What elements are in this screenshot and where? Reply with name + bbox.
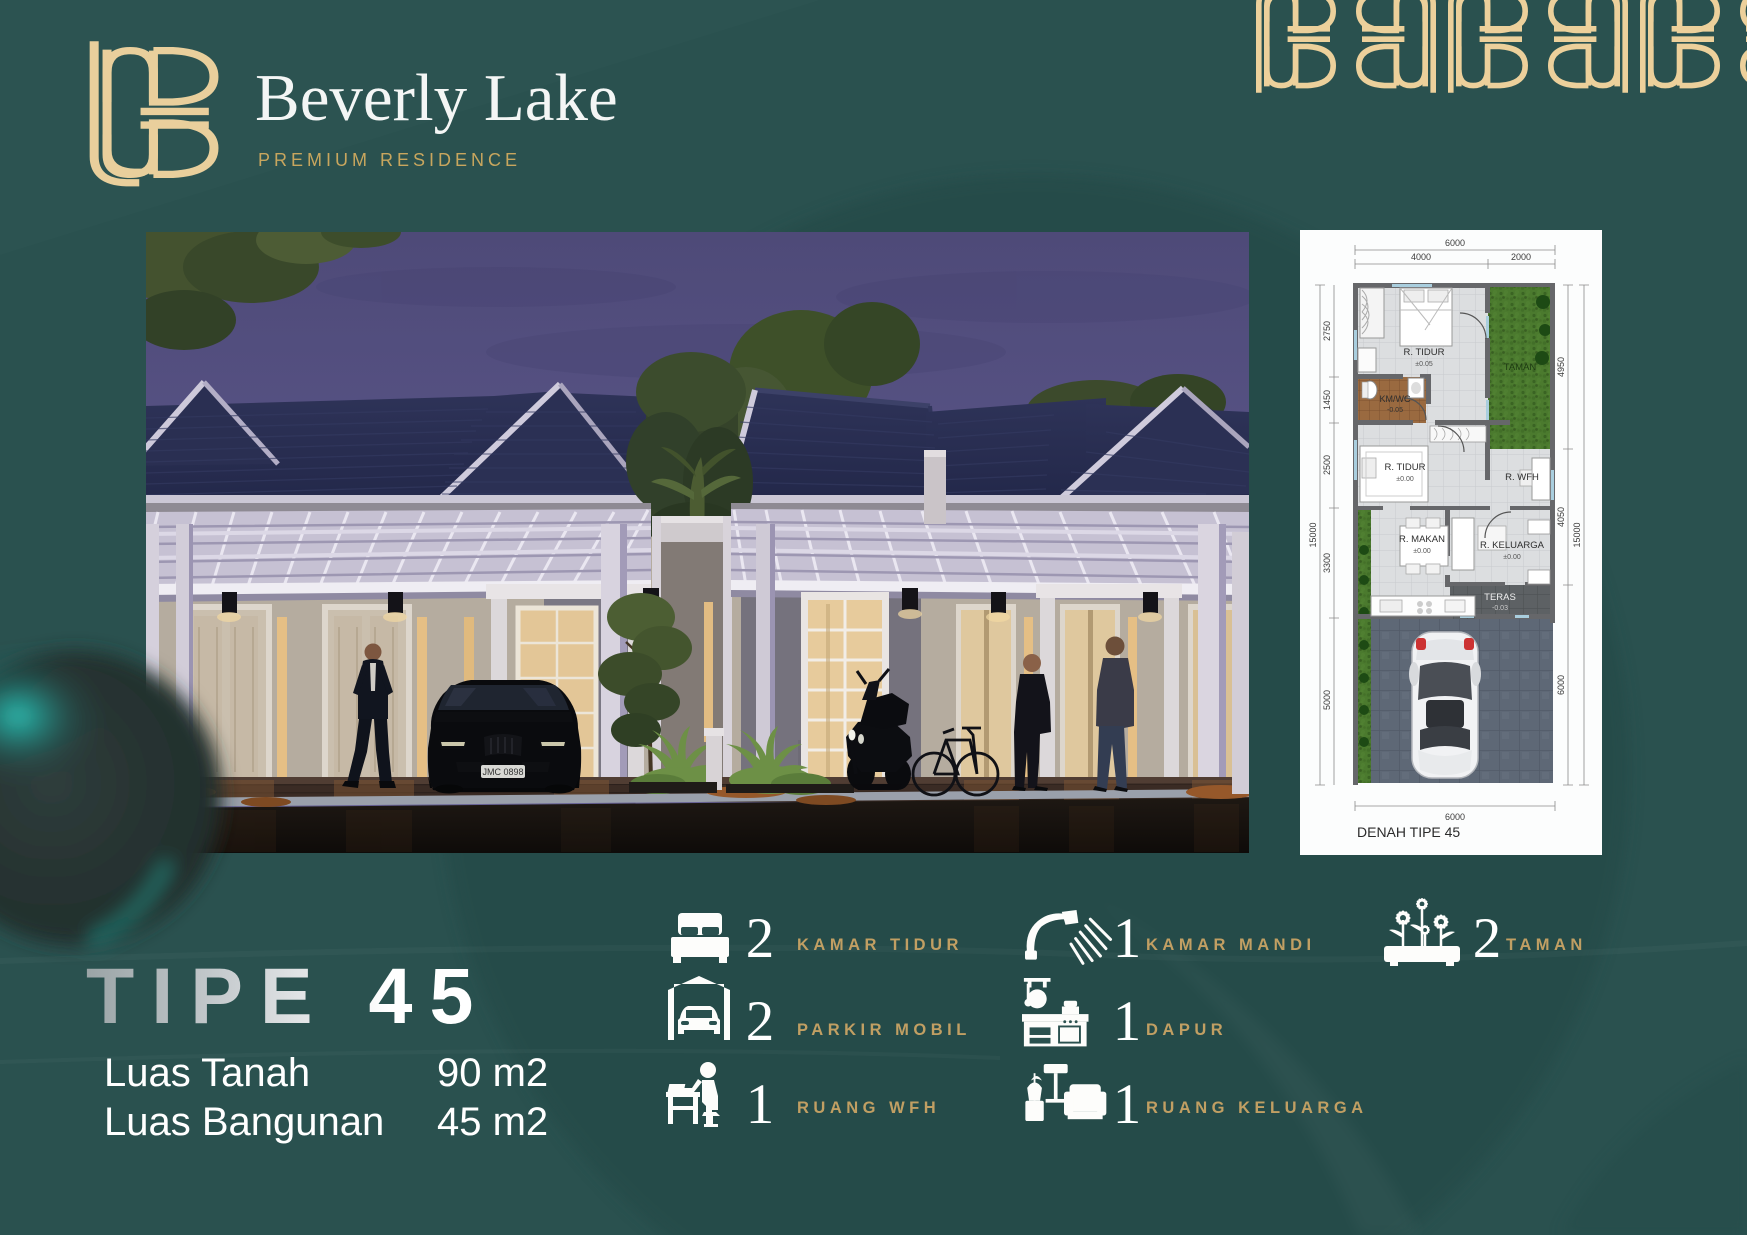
svg-text:1: 1 xyxy=(746,1073,775,1136)
svg-text:KM/WC: KM/WC xyxy=(1380,394,1411,404)
svg-text:1: 1 xyxy=(1113,990,1142,1053)
svg-text:5000: 5000 xyxy=(1322,690,1332,710)
svg-text:2: 2 xyxy=(746,907,775,970)
svg-text:R. TIDUR: R. TIDUR xyxy=(1385,462,1426,473)
svg-text:RUANG KELUARGA: RUANG KELUARGA xyxy=(1146,1099,1368,1117)
svg-text:15000: 15000 xyxy=(1572,522,1582,547)
svg-text:±0.05: ±0.05 xyxy=(1415,361,1433,368)
svg-text:2: 2 xyxy=(1473,907,1502,970)
svg-text:JMC 0898: JMC 0898 xyxy=(482,767,523,777)
svg-text:PARKIR MOBIL: PARKIR MOBIL xyxy=(797,1021,971,1039)
svg-text:KAMAR TIDUR: KAMAR TIDUR xyxy=(797,936,963,954)
svg-text:R. WFH: R. WFH xyxy=(1505,472,1539,483)
svg-text:DENAH TIPE 45: DENAH TIPE 45 xyxy=(1357,824,1460,840)
svg-text:±0.00: ±0.00 xyxy=(1413,548,1431,555)
svg-text:DAPUR: DAPUR xyxy=(1146,1021,1227,1039)
svg-text:±0.00: ±0.00 xyxy=(1396,476,1414,483)
svg-text:TAMAN: TAMAN xyxy=(1504,362,1537,373)
svg-text:-0.03: -0.03 xyxy=(1492,605,1508,612)
svg-text:RUANG WFH: RUANG WFH xyxy=(797,1099,940,1117)
svg-text:KAMAR MANDI: KAMAR MANDI xyxy=(1146,936,1316,954)
svg-text:4050: 4050 xyxy=(1556,507,1566,527)
svg-text:TERAS: TERAS xyxy=(1484,592,1516,603)
svg-text:15000: 15000 xyxy=(1308,522,1318,547)
svg-text:2: 2 xyxy=(746,990,775,1053)
svg-text:4000: 4000 xyxy=(1411,252,1431,262)
svg-text:4950: 4950 xyxy=(1556,357,1566,377)
svg-text:-0.05: -0.05 xyxy=(1387,407,1403,414)
svg-text:2500: 2500 xyxy=(1322,455,1332,475)
svg-text:3300: 3300 xyxy=(1322,553,1332,573)
svg-text:1450: 1450 xyxy=(1322,390,1332,410)
svg-text:R. TIDUR: R. TIDUR xyxy=(1404,347,1445,358)
svg-text:6000: 6000 xyxy=(1445,812,1465,822)
svg-text:±0.00: ±0.00 xyxy=(1503,554,1521,561)
svg-text:TAMAN: TAMAN xyxy=(1506,936,1587,954)
svg-text:1: 1 xyxy=(1113,1073,1142,1136)
svg-text:2750: 2750 xyxy=(1322,321,1332,341)
svg-text:R. MAKAN: R. MAKAN xyxy=(1399,534,1445,545)
svg-text:6000: 6000 xyxy=(1556,675,1566,695)
svg-text:6000: 6000 xyxy=(1445,238,1465,248)
svg-text:2000: 2000 xyxy=(1511,252,1531,262)
svg-text:1: 1 xyxy=(1113,907,1142,970)
svg-text:R. KELUARGA: R. KELUARGA xyxy=(1480,540,1545,551)
